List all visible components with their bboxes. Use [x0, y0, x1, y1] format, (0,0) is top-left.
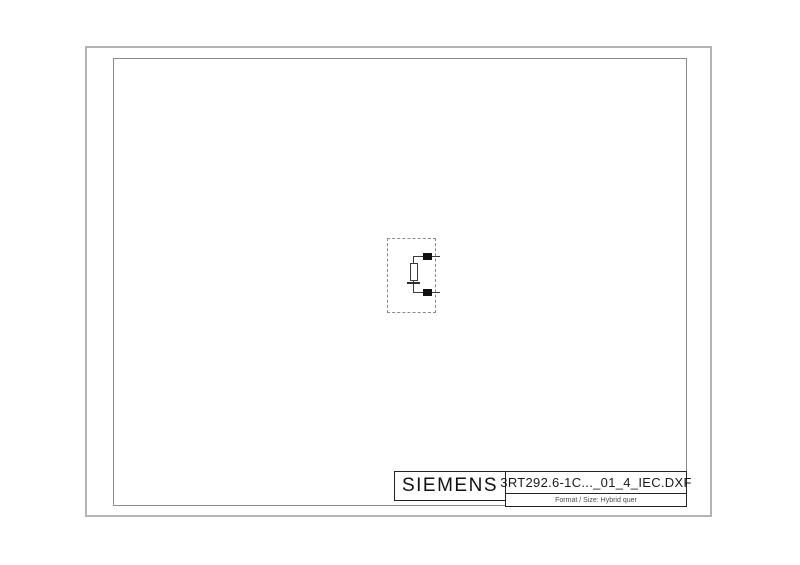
format-size-label: Format / Size: Hybrid quer — [505, 493, 687, 507]
resistor-symbol — [410, 263, 418, 281]
terminal-top — [423, 253, 432, 260]
drawing-filename: 3RT292.6-1C..._01_4_IEC.DXF — [505, 471, 687, 494]
dxf-drawing-canvas: SIEMENS 3RT292.6-1C..._01_4_IEC.DXF Form… — [0, 0, 800, 565]
siemens-logo: SIEMENS — [394, 471, 506, 501]
terminal-bottom — [423, 289, 432, 296]
capacitor-symbol — [407, 282, 420, 284]
